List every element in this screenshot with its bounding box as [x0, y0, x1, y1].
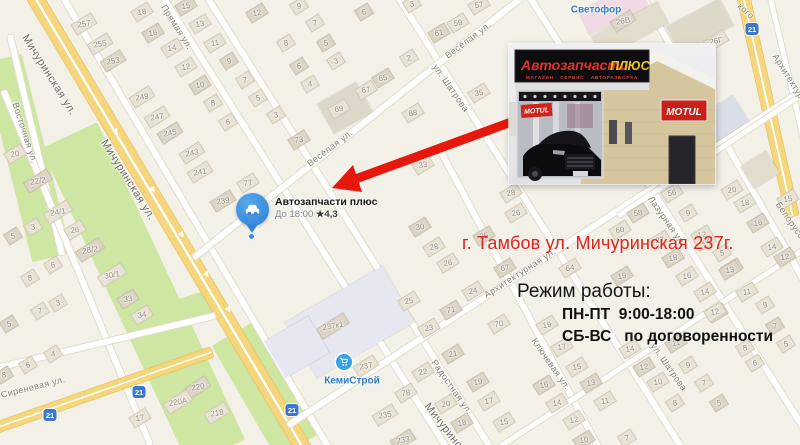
building-number: 12: [252, 8, 262, 18]
building-number: 11: [210, 38, 220, 48]
building-number: 13: [725, 265, 735, 275]
motul-banner-logo: MOTUL: [521, 103, 553, 118]
building-number: 28: [506, 188, 516, 198]
building-number: 59: [453, 18, 463, 28]
motul-wall-sign: MOTUL: [661, 100, 707, 121]
schedule-title: Режим работы:: [517, 281, 651, 303]
building-number: 14: [767, 242, 777, 252]
building-number: 73: [294, 135, 304, 145]
photo-window: [609, 120, 617, 144]
building-number: 88: [408, 108, 418, 118]
building-number: 19: [617, 271, 627, 281]
building-number: 24/1: [50, 206, 67, 218]
address-text: г. Тамбов ул. Мичуринская 237г.: [462, 233, 734, 254]
building-number: 13: [195, 19, 205, 29]
building-number: 257: [77, 18, 92, 29]
pin-tail: [246, 224, 258, 233]
place-rating: 4,3: [324, 209, 337, 220]
building-number: 18: [668, 253, 678, 263]
building-number: 245: [163, 127, 178, 138]
building-number: 69: [334, 104, 344, 114]
svg-text:ПЛЮС: ПЛЮС: [610, 59, 651, 73]
building-number: 33: [123, 294, 133, 304]
building-number: 70: [494, 319, 504, 329]
building-number: 10: [579, 435, 589, 445]
poi-label[interactable]: Светофор: [571, 5, 621, 16]
storefront-banner: MOTUL: [517, 90, 603, 181]
building-number: 22: [418, 367, 428, 377]
car-icon: [243, 200, 262, 219]
building-number: 78: [401, 388, 411, 398]
building-number: 14: [167, 43, 177, 53]
building-number: 255: [93, 38, 108, 49]
street-label: Сиреневая ул.: [0, 374, 66, 400]
building-number: 34: [137, 310, 147, 320]
pin-circle[interactable]: [236, 193, 269, 226]
building-number: 239: [216, 195, 231, 206]
road-number-badge: 21: [286, 404, 299, 416]
building-number: 14: [700, 287, 710, 297]
building-number: 21: [448, 349, 458, 359]
building-number: 58: [633, 208, 643, 218]
building-number: 61: [434, 28, 444, 38]
photo-door: [669, 136, 695, 184]
building-number: 28: [429, 242, 439, 252]
storefront-photo: MOTUL MOTUL: [509, 44, 715, 184]
building-number: 233: [396, 434, 411, 445]
shopping-cart-icon[interactable]: [336, 354, 352, 370]
building-number: 253: [106, 55, 121, 66]
building-number: 57: [474, 0, 484, 10]
building-number: 16: [148, 28, 158, 38]
building-number: 11: [742, 287, 752, 297]
schedule-weekend: СБ-ВС по договоренности: [562, 328, 773, 346]
building-number: 30: [415, 222, 425, 232]
building-number: 67: [361, 85, 371, 95]
building-number: 13: [586, 378, 596, 388]
building-number: 65: [378, 73, 388, 83]
building-number: 77: [243, 178, 253, 188]
building-number: 56: [667, 188, 677, 198]
building-number: 15: [499, 417, 509, 427]
place-name[interactable]: Автозапчасти плюс: [275, 196, 377, 208]
building-number: 235: [378, 409, 393, 420]
building-number: 12: [639, 362, 649, 372]
svg-text:МАГАЗИН · СЕРВИС · АВТОРАЗБОРК: МАГАЗИН · СЕРВИС · АВТОРАЗБОРКА: [526, 75, 638, 80]
building-number: 23: [424, 323, 434, 333]
photo-window: [625, 122, 632, 144]
building-number: 25: [404, 296, 414, 306]
building-number: 20: [727, 185, 737, 195]
building-number: 12: [780, 252, 790, 262]
building-number: 18: [137, 7, 147, 17]
building-number: 18: [740, 198, 750, 208]
building-number: 67: [500, 263, 510, 273]
building-number: 64: [565, 263, 575, 273]
building-number: 24: [468, 286, 478, 296]
storefront-sign: Автозапчасти ПЛЮС МАГАЗИН · СЕРВИС · АВТ…: [515, 50, 651, 90]
pin-label[interactable]: Автозапчасти плюс До 18:00 ★4,3: [275, 196, 377, 220]
building-number: 241: [193, 166, 208, 177]
building-number: 243: [185, 147, 200, 158]
building-number: 10: [653, 377, 663, 387]
building-number: 33: [418, 160, 428, 170]
building-number: 12: [181, 62, 191, 72]
map-screenshot: 2572552532492472452432412397718161412108…: [0, 0, 800, 445]
building-number: 19: [542, 320, 552, 330]
building-number: 16: [539, 380, 549, 390]
building-number: 26: [443, 258, 453, 268]
building-number: 11: [600, 396, 610, 406]
place-meta: До 18:00 ★4,3: [275, 209, 377, 220]
building-number: 12: [710, 307, 720, 317]
building-number: 26: [511, 208, 521, 218]
pin-entrance-dot: [249, 234, 254, 239]
map-pin-autozapchasti[interactable]: [236, 193, 269, 237]
building-number: 35: [474, 88, 484, 98]
svg-text:MOTUL: MOTUL: [666, 107, 702, 118]
building-number: 71: [446, 305, 456, 315]
building-number: 12: [569, 415, 579, 425]
building-number: 17: [484, 396, 494, 406]
building-number: 14: [552, 398, 562, 408]
building-number: 17: [135, 413, 145, 423]
building-number: 19: [473, 377, 483, 387]
poi-label[interactable]: КемиСтрой: [324, 376, 380, 387]
building-number: 18: [457, 418, 467, 428]
building-number: 20: [441, 399, 451, 409]
road-number-badge: 21: [133, 386, 146, 398]
schedule-weekdays: ПН-ПТ 9:00-18:00: [562, 306, 695, 324]
building-number: 15: [181, 1, 191, 11]
place-hours: До 18:00: [275, 209, 313, 220]
street-label: Весёлая ул.: [305, 128, 355, 169]
building-number: 249: [135, 91, 150, 102]
building-number: 247: [150, 111, 165, 122]
building-number: 16: [753, 218, 763, 228]
building-number: 26: [70, 225, 80, 235]
building-number: 20: [10, 149, 20, 159]
road-number-badge: 21: [746, 23, 759, 35]
building-number: 10: [195, 80, 205, 90]
building-number: 15: [572, 362, 582, 372]
road-number-badge: 21: [44, 409, 57, 421]
street-label: ул. Шатрова: [431, 62, 471, 113]
building-number: 16: [682, 271, 692, 281]
